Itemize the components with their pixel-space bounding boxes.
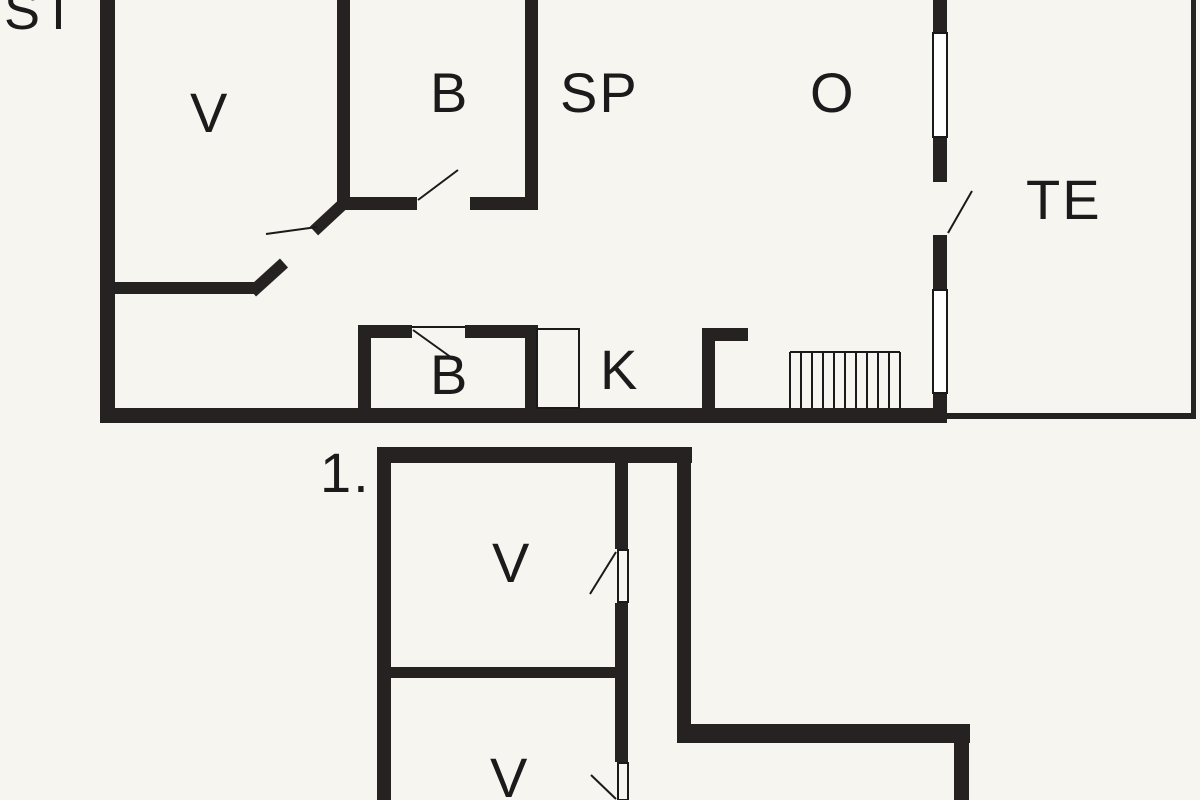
wall-b-bottom-left [337, 197, 417, 210]
terrace-border-bottom [947, 413, 1196, 419]
wall-angled-seg [314, 205, 342, 231]
wall-left [100, 0, 115, 423]
wall-bottom [100, 408, 947, 423]
floor-plan: ST V B SP O TE B K 1. V V [0, 0, 1200, 800]
room-label-sp: SP [560, 65, 639, 121]
wall-right [677, 447, 691, 743]
room-label-st: ST [4, 0, 77, 39]
staircase [790, 352, 900, 408]
room-label-b-small: B [430, 347, 469, 403]
wall-angled-seg [252, 263, 284, 292]
wall-b-left [337, 0, 350, 197]
door-swing-upper [590, 552, 616, 594]
wall-left [377, 447, 391, 800]
wall-right-seg [933, 235, 947, 290]
wall-inner-upper [615, 463, 628, 549]
window-lower [933, 290, 947, 393]
wall-partition-horizontal [702, 328, 748, 341]
door-leaf-lower [618, 763, 628, 800]
wall-divider [377, 667, 620, 678]
wall-extension-top [677, 724, 970, 743]
room-label-b-main: B [430, 65, 469, 121]
wall-right-seg [933, 137, 947, 182]
stair-treads [790, 352, 900, 408]
door-leaf-upper [618, 550, 628, 602]
fixture-cupboard [537, 329, 579, 408]
wall-extension-right [954, 724, 969, 800]
ground-floor-angled-walls [252, 205, 342, 292]
terrace-border-right [1191, 0, 1196, 419]
door-swing-v [266, 227, 317, 234]
wall-b-right [525, 0, 538, 210]
room-label-k: K [600, 342, 639, 398]
room-label-v-first-upper: V [492, 535, 531, 591]
door-swing-b [418, 170, 458, 200]
door-swing-terrace [948, 191, 972, 233]
room-label-te: TE [1026, 172, 1102, 228]
wall-smallb-top-left [358, 325, 412, 338]
wall-v-bottom [115, 282, 258, 294]
wall-top [377, 447, 692, 463]
door-swing-lower [591, 775, 616, 799]
room-label-o: O [810, 65, 856, 121]
floor-marker-1: 1. [320, 445, 371, 501]
room-label-v-first-lower: V [490, 750, 529, 800]
first-floor [377, 447, 970, 800]
wall-inner-lower [615, 603, 628, 762]
windows [933, 33, 947, 393]
room-label-v-main: V [190, 85, 229, 141]
wall-right-seg [933, 393, 947, 408]
window-upper [933, 33, 947, 137]
wall-right-seg [933, 0, 947, 33]
